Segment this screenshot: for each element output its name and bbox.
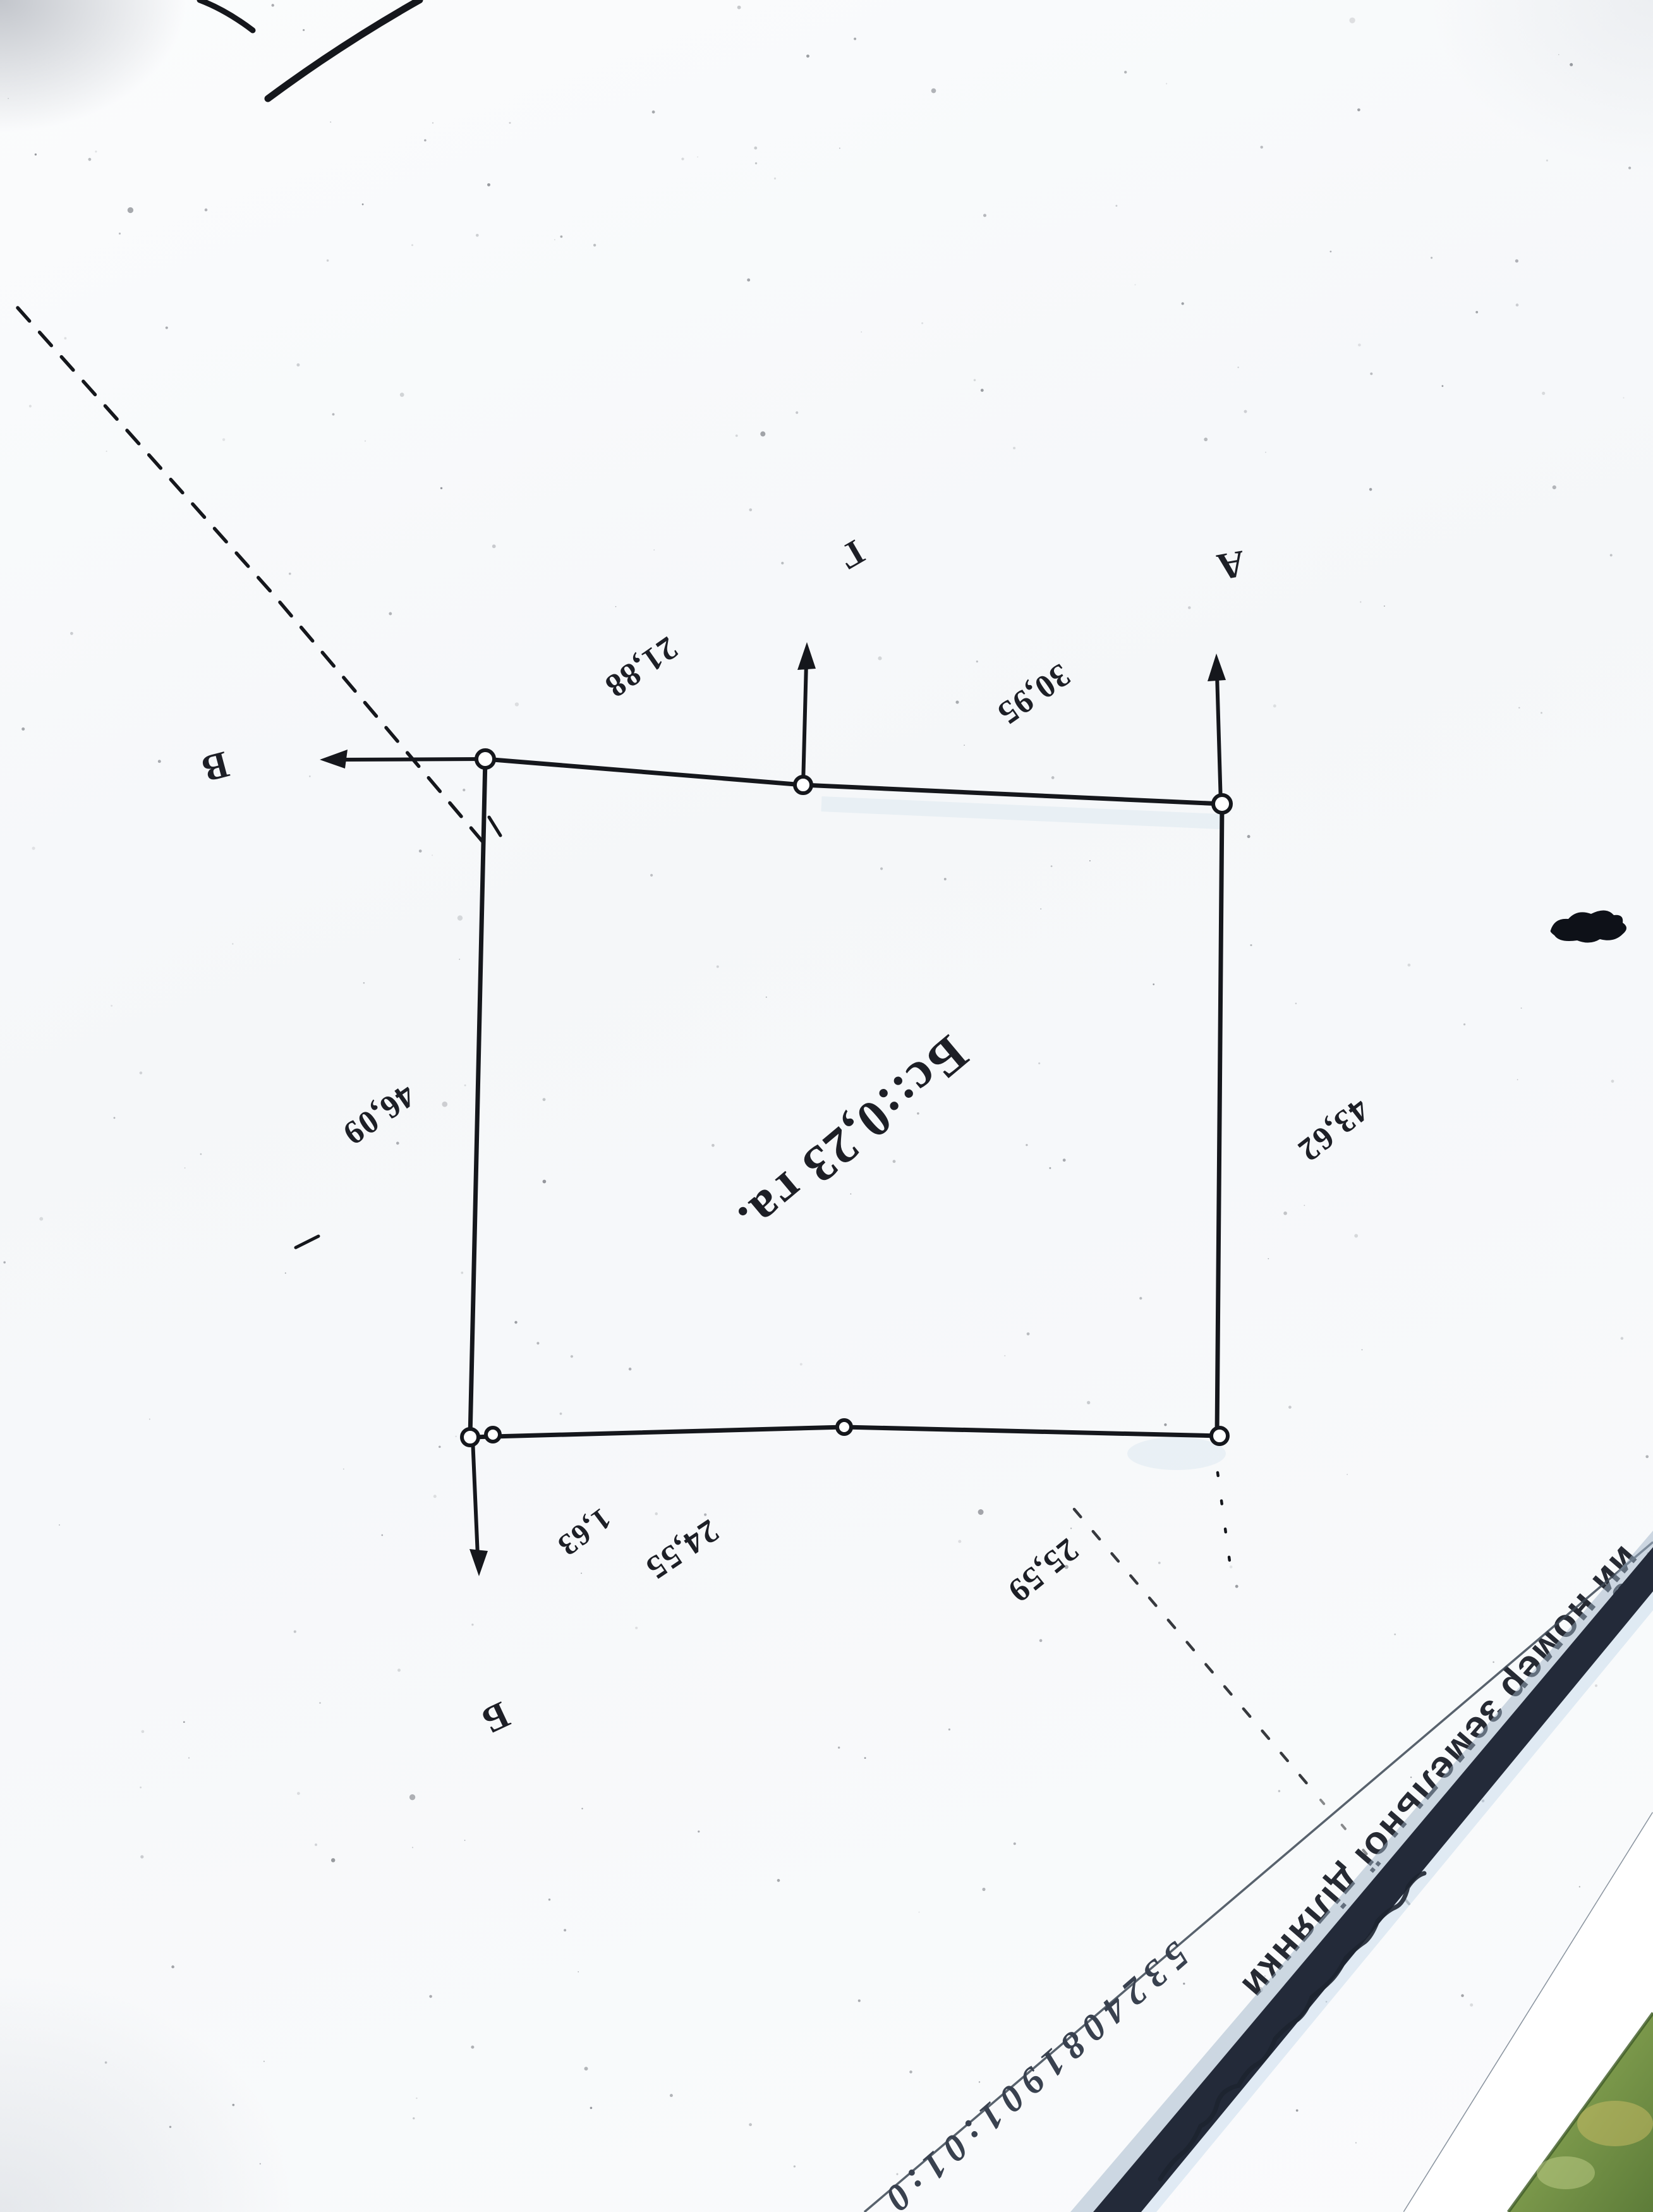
- tick-near-corner-v: [489, 817, 500, 836]
- node-corner-b-second: [486, 1428, 500, 1442]
- arrow-north-right-head: [1208, 653, 1226, 681]
- parcel-right-edge: [1217, 804, 1222, 1436]
- tick-left-side: [296, 1236, 318, 1248]
- shadow-bottom-right-node: [1127, 1437, 1226, 1470]
- corner-label-v: В: [198, 743, 233, 790]
- corner-label-g: Г: [832, 532, 871, 578]
- dashed-dots-below-corner: [1218, 1473, 1232, 1580]
- arrow-south-head: [469, 1549, 488, 1576]
- parcel-area-label: Бс::0,23 га.: [727, 1025, 979, 1249]
- scanned-parcel-plan-page: 21,88 30,95 46,09 43,62 1,63 24,55 25,59…: [0, 0, 1653, 2212]
- node-corner-v: [476, 750, 494, 768]
- dim-bottom-right: 25,59: [1000, 1531, 1086, 1610]
- node-mid-bottom: [837, 1420, 851, 1434]
- dashed-line-northwest: [18, 308, 483, 842]
- table-surface-highlight-2: [1537, 2156, 1595, 2189]
- shadow-under-top-edge: [821, 804, 1221, 822]
- arrow-west-head: [320, 750, 348, 769]
- arrow-north-mid-shaft: [803, 662, 806, 785]
- corner-label-b: Б: [476, 1694, 516, 1742]
- arrow-north-mid-head: [797, 642, 816, 670]
- dim-left-side: 46,09: [336, 1077, 422, 1153]
- node-corner-bottom-right: [1211, 1428, 1228, 1444]
- dim-top-left: 21,88: [598, 629, 684, 705]
- dim-top-right: 30,95: [990, 657, 1077, 732]
- node-corner-a: [1213, 795, 1231, 813]
- table-surface-highlight: [1577, 2101, 1653, 2146]
- plan-svg: 21,88 30,95 46,09 43,62 1,63 24,55 25,59…: [0, 0, 1653, 2212]
- arrow-north-right-shaft: [1217, 674, 1221, 804]
- dim-bottom-left: 24,55: [639, 1512, 725, 1587]
- arrow-west-shaft: [341, 759, 485, 760]
- dim-right-side: 43,62: [1291, 1091, 1376, 1169]
- node-mid-g: [795, 777, 811, 793]
- corner-label-a: А: [1214, 542, 1248, 588]
- pen-stroke-top-short: [200, 0, 253, 30]
- parcel-top-edge: [485, 759, 1222, 804]
- parcel-left-edge: [470, 759, 485, 1437]
- pen-stroke-top-long: [268, 0, 420, 99]
- dashed-line-southeast: [1074, 1509, 1311, 1789]
- arrow-south-shaft: [473, 1438, 478, 1556]
- dim-bottom-small: 1,63: [551, 1502, 617, 1564]
- node-corner-b: [462, 1429, 478, 1445]
- ink-blob-right: [1551, 910, 1626, 942]
